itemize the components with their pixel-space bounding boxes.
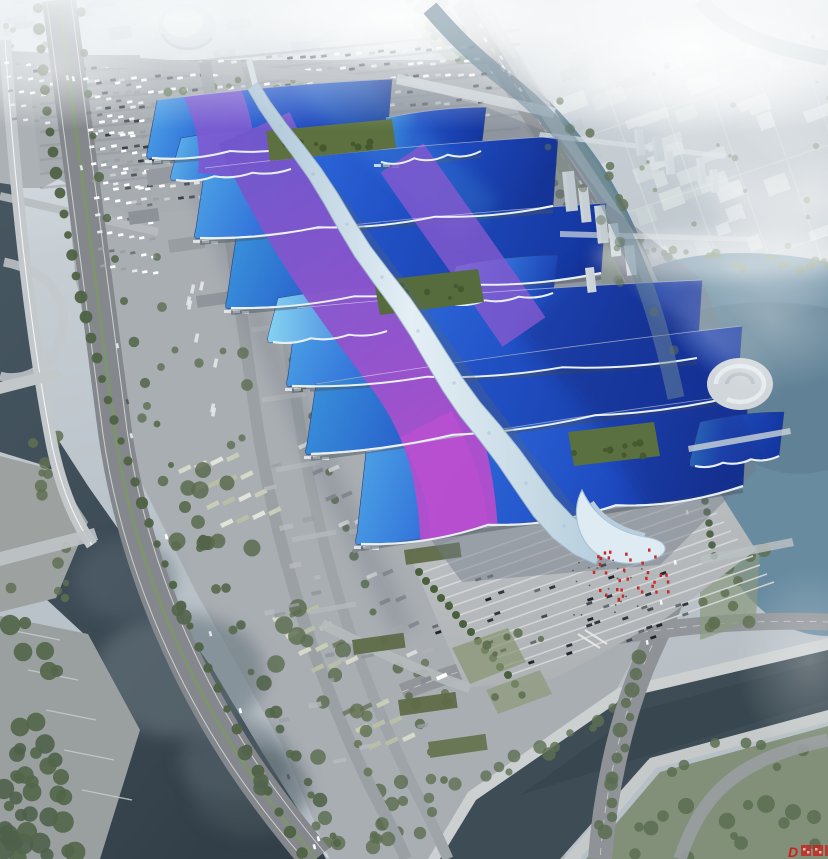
svg-text:D: D <box>788 844 798 859</box>
